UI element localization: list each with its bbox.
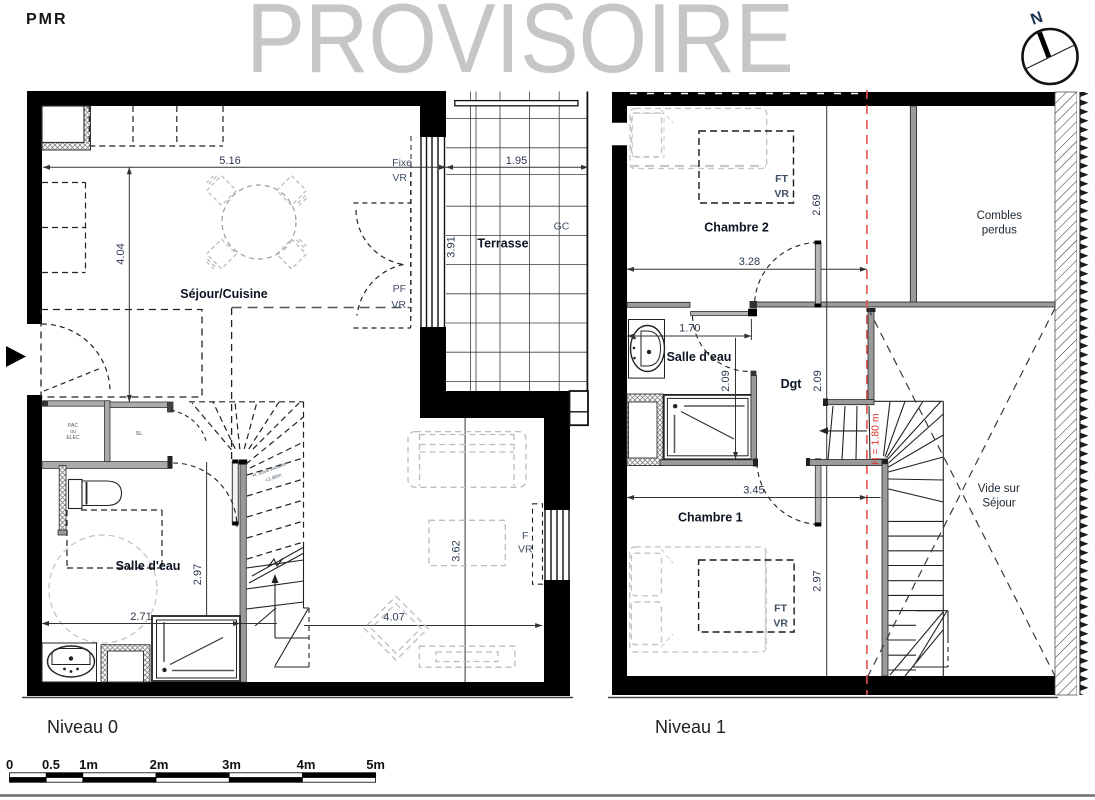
svg-text:5.16: 5.16	[219, 155, 240, 167]
svg-text:Chambre 1: Chambre 1	[678, 511, 743, 525]
svg-text:VR: VR	[518, 544, 533, 556]
svg-text:VR: VR	[391, 299, 406, 311]
svg-text:2.97: 2.97	[192, 564, 204, 585]
svg-text:PMR: PMR	[26, 11, 68, 28]
svg-text:Chambre 2: Chambre 2	[704, 221, 769, 235]
svg-text:4.04: 4.04	[115, 243, 127, 264]
svg-text:Salle d'eau: Salle d'eau	[667, 350, 732, 364]
svg-text:Vide sur: Vide sur	[978, 483, 1020, 495]
svg-text:3.62: 3.62	[451, 540, 463, 561]
svg-text:FT: FT	[775, 173, 788, 185]
svg-text:F: F	[522, 530, 528, 542]
svg-text:Fixe: Fixe	[392, 157, 412, 169]
svg-text:FT: FT	[774, 603, 787, 615]
svg-text:2.71: 2.71	[130, 611, 151, 623]
svg-text:PF: PF	[393, 283, 406, 295]
svg-text:VR: VR	[392, 172, 407, 184]
svg-text:GC: GC	[554, 221, 570, 233]
svg-text:0: 0	[6, 757, 13, 772]
svg-text:PROVISOIRE: PROVISOIRE	[246, 0, 794, 93]
svg-text:3m: 3m	[222, 757, 241, 772]
svg-text:3.91: 3.91	[446, 236, 458, 257]
svg-text:Dgt: Dgt	[781, 377, 803, 391]
svg-text:4.07: 4.07	[383, 612, 404, 624]
svg-text:1m: 1m	[79, 757, 98, 772]
svg-text:2m: 2m	[150, 757, 169, 772]
svg-text:Niveau 1: Niveau 1	[655, 717, 726, 737]
svg-text:0.5: 0.5	[42, 757, 60, 772]
svg-text:3.28: 3.28	[739, 256, 760, 268]
svg-text:H = 1.80 m: H = 1.80 m	[870, 413, 882, 465]
svg-text:VR: VR	[773, 618, 788, 630]
svg-text:Salle d'eau: Salle d'eau	[116, 559, 181, 573]
svg-text:3.45: 3.45	[743, 485, 764, 497]
svg-text:2.09: 2.09	[812, 370, 824, 391]
svg-text:ELEC: ELEC	[66, 435, 79, 441]
svg-text:Niveau 0: Niveau 0	[47, 717, 118, 737]
svg-text:perdus: perdus	[982, 225, 1017, 237]
svg-text:2.97: 2.97	[811, 570, 823, 591]
svg-text:2.09: 2.09	[720, 370, 732, 391]
svg-text:1.70: 1.70	[679, 323, 700, 335]
svg-text:4m: 4m	[297, 757, 316, 772]
svg-text:Terrasse: Terrasse	[477, 237, 528, 251]
svg-text:VR: VR	[774, 188, 789, 200]
svg-text:1.95: 1.95	[506, 155, 527, 167]
svg-text:5m: 5m	[366, 757, 385, 772]
svg-text:Séjour: Séjour	[982, 498, 1015, 510]
svg-text:2.69: 2.69	[811, 194, 823, 215]
svg-text:Combles: Combles	[977, 210, 1023, 222]
svg-text:SL: SL	[136, 431, 143, 437]
svg-text:Séjour/Cuisine: Séjour/Cuisine	[180, 287, 268, 301]
